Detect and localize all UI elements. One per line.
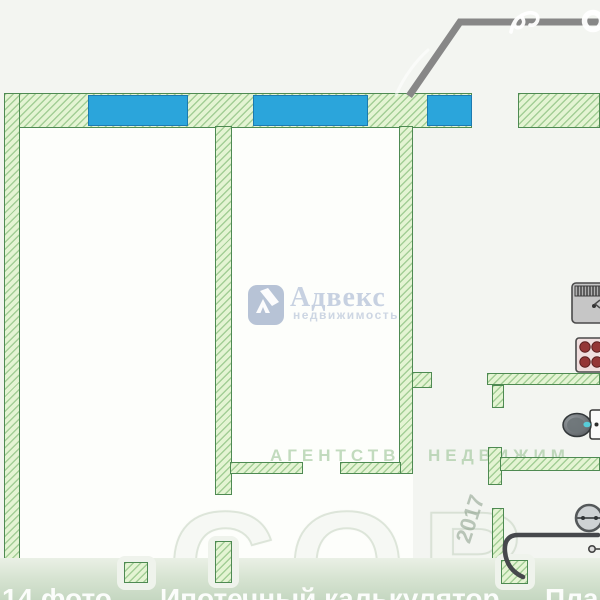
wall-stub-corridor xyxy=(412,372,432,388)
wall-left-outer xyxy=(4,93,20,562)
sink-icon xyxy=(572,283,600,323)
tap-icon xyxy=(589,546,600,552)
advecs-watermark: Адвекс недвижимость xyxy=(246,282,396,327)
wall-stub-bottom-3 xyxy=(501,560,528,584)
wall-room2-bottom-left xyxy=(230,462,303,474)
wall-room2-bottom-right xyxy=(340,462,401,474)
balcony-line xyxy=(409,22,600,96)
window-2 xyxy=(253,95,368,126)
wall-wc-bottom xyxy=(500,457,600,471)
toilet-icon xyxy=(563,410,600,439)
stove-icon xyxy=(576,338,600,372)
washbasin-icon xyxy=(575,505,600,531)
wall-kitchen-stub xyxy=(492,385,504,408)
wall-top-right xyxy=(518,93,600,128)
wall-kitchen-bottom xyxy=(487,373,600,385)
floor-plan-viewer: АГЕНТСТВО НЕДВИЖИМ СОВ 2017 14 фото Ипот… xyxy=(0,0,600,600)
toolbar-item-photos[interactable]: 14 фото xyxy=(2,583,112,600)
toolbar-item-mortgage-calculator[interactable]: Ипотечный калькулятор xyxy=(160,583,500,600)
wall-top xyxy=(4,93,472,128)
wall-stub-bottom-2 xyxy=(215,541,232,583)
wall-middle-vertical xyxy=(215,126,232,495)
window-1 xyxy=(88,95,188,126)
wall-stub-bottom-1 xyxy=(124,562,148,583)
advecs-subtitle-text: недвижимость xyxy=(293,308,399,322)
advecs-logo-icon xyxy=(248,285,284,325)
toolbar-item-plan[interactable]: Пла xyxy=(545,583,598,600)
wall-right-vertical xyxy=(399,126,413,474)
window-3 xyxy=(427,95,472,126)
pen-squiggle-icon xyxy=(396,13,600,96)
